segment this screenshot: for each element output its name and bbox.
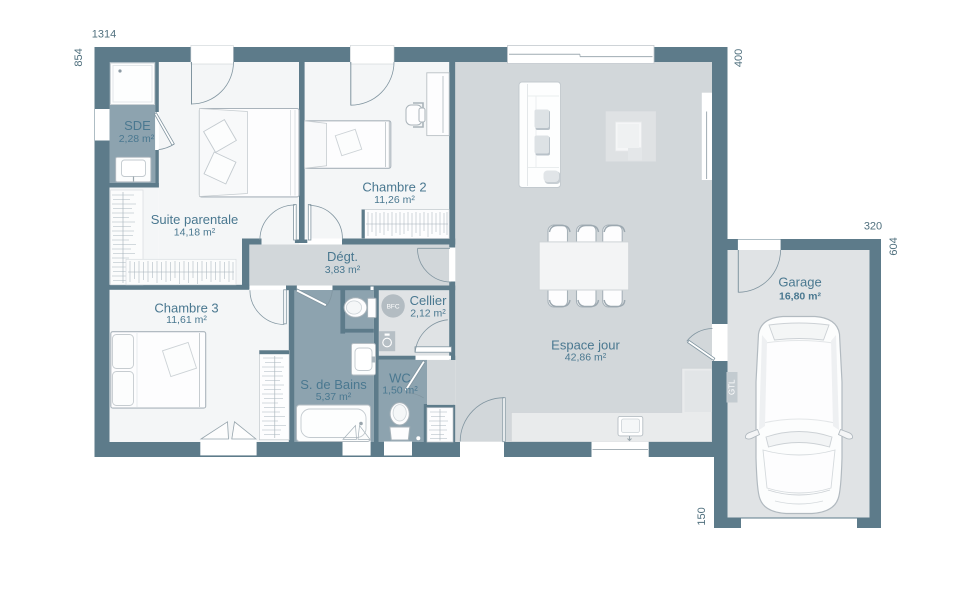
svg-text:400: 400 — [733, 49, 745, 67]
svg-text:16,80 m²: 16,80 m² — [779, 291, 822, 303]
svg-text:GTL: GTL — [728, 379, 737, 395]
svg-text:11,26 m²: 11,26 m² — [374, 194, 415, 206]
svg-text:604: 604 — [888, 237, 900, 255]
svg-text:SDE: SDE — [124, 118, 151, 133]
svg-text:1314: 1314 — [92, 29, 116, 41]
svg-text:Espace jour: Espace jour — [551, 338, 620, 353]
svg-text:S. de Bains: S. de Bains — [300, 377, 367, 392]
svg-text:14,18 m²: 14,18 m² — [174, 227, 216, 239]
svg-text:Suite parentale: Suite parentale — [151, 212, 238, 227]
svg-text:Cellier: Cellier — [410, 293, 448, 308]
svg-text:Chambre 2: Chambre 2 — [362, 180, 426, 195]
svg-text:Dégt.: Dégt. — [327, 249, 358, 264]
svg-text:1,50 m²: 1,50 m² — [382, 385, 418, 397]
svg-text:2,28 m²: 2,28 m² — [119, 133, 155, 145]
svg-text:BFC: BFC — [387, 303, 400, 310]
svg-text:42,86 m²: 42,86 m² — [565, 352, 607, 364]
svg-text:11,61 m²: 11,61 m² — [166, 314, 207, 326]
svg-text:WC: WC — [389, 371, 411, 386]
svg-text:150: 150 — [696, 507, 708, 525]
svg-text:3,83 m²: 3,83 m² — [325, 264, 361, 276]
svg-text:854: 854 — [73, 48, 85, 66]
svg-text:5,37 m²: 5,37 m² — [316, 391, 352, 403]
svg-text:Garage: Garage — [778, 275, 821, 290]
svg-text:2,12 m²: 2,12 m² — [410, 308, 446, 320]
svg-text:320: 320 — [864, 221, 882, 233]
